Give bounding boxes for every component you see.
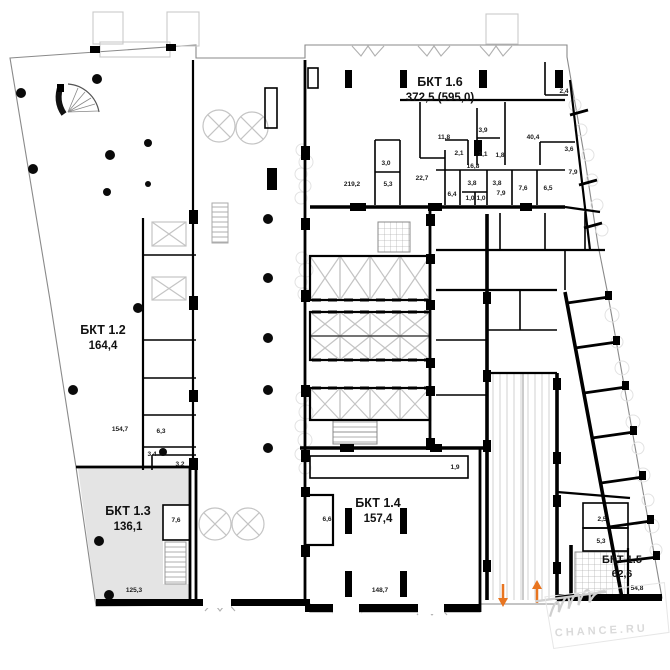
room-area-label: 3,8 xyxy=(467,180,476,187)
room-area-label: 1,0 xyxy=(476,195,485,202)
unit-area-bkt-1-4: 157,4 xyxy=(364,513,393,525)
unit-name-bkt-1-5: БКТ 1.5 xyxy=(602,554,642,566)
room-area-label: 16,8 xyxy=(467,163,480,170)
room-area-label: 5,3 xyxy=(596,538,605,545)
room-area-label: 7,9 xyxy=(568,169,577,176)
room-area-label: 1,0 xyxy=(465,195,474,202)
room-area-label: 3,9 xyxy=(478,127,487,134)
room-area-label: 7,6 xyxy=(171,517,180,524)
round-columns xyxy=(199,110,268,540)
curved-stair-element xyxy=(57,84,99,114)
room-area-label: 154,7 xyxy=(112,426,129,433)
room-area-label: 219,2 xyxy=(344,181,361,188)
room-area-label: 3,0 xyxy=(381,160,390,167)
room-area-label: 6,5 xyxy=(543,185,552,192)
room-area-label: 3,2 xyxy=(175,461,184,468)
unit-area-bkt-1-3: 136,1 xyxy=(114,521,143,533)
room-area-label: 40,4 xyxy=(527,134,540,141)
unit-name-bkt-1-2: БКТ 1.2 xyxy=(80,323,125,337)
room-area-label: 148,7 xyxy=(372,587,389,594)
room-area-label: 2,1 xyxy=(478,151,487,158)
elevator-bank-3 xyxy=(310,388,430,420)
room-area-label: 6,3 xyxy=(156,428,165,435)
room-area-label: 22,7 xyxy=(416,175,429,182)
room-area-label: 6,6 xyxy=(322,516,331,523)
room-area-label: 6,4 xyxy=(447,191,456,198)
floor-plan: БКТ 1.2 164,4 БКТ 1.3 136,1 БКТ 1.4 157,… xyxy=(0,0,670,670)
room-area-label: 3,8 xyxy=(492,180,501,187)
room-area-label: 2,1 xyxy=(454,150,463,157)
room-area-label: 2,5 xyxy=(597,516,606,523)
unit-name-bkt-1-4: БКТ 1.4 xyxy=(355,496,400,510)
unit-area-bkt-1-6: 372,5 (595,0) xyxy=(406,92,475,104)
room-area-label: 2,4 xyxy=(559,88,568,95)
scallop-decorations xyxy=(205,46,662,615)
room-area-label: 1,8 xyxy=(495,152,504,159)
small-shaft-a xyxy=(152,222,186,246)
room-area-label: 3,4 xyxy=(147,451,156,458)
unit-name-bkt-1-6: БКТ 1.6 xyxy=(417,75,462,89)
room-area-label: 5,3 xyxy=(383,181,392,188)
room-area-label: 7,9 xyxy=(496,190,505,197)
unit-area-bkt-1-5: 62,6 xyxy=(612,568,633,580)
elevator-bank-1 xyxy=(310,256,430,300)
unit-name-bkt-1-3: БКТ 1.3 xyxy=(105,504,150,518)
room-area-label: 7,6 xyxy=(518,185,527,192)
room-area-label: 11,8 xyxy=(438,134,451,141)
room-area-label: 125,3 xyxy=(126,587,143,594)
small-shaft-b xyxy=(152,277,186,300)
room-area-label: 1,9 xyxy=(450,464,459,471)
unit-area-bkt-1-2: 164,4 xyxy=(89,340,118,352)
parking-ramp xyxy=(487,373,557,600)
room-area-label: 3,6 xyxy=(564,146,573,153)
